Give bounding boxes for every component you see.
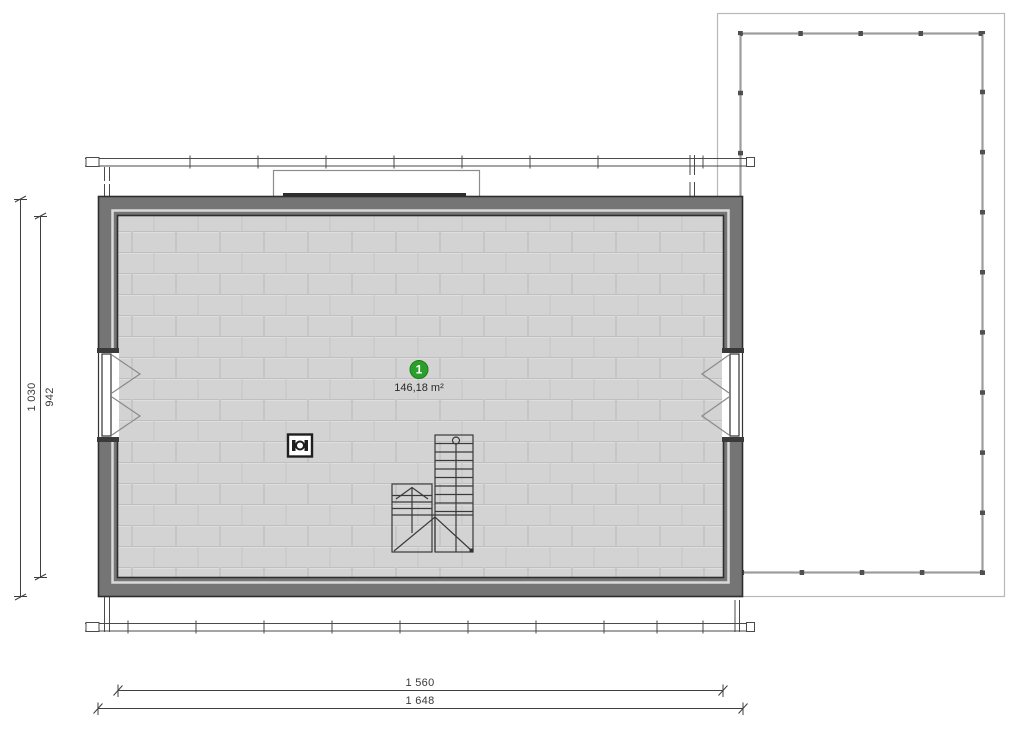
gutter-tick-icon: [105, 167, 110, 196]
gutter-tick-icon: [105, 597, 110, 632]
dimension-bottom-inner: 1 560: [114, 677, 728, 697]
floor-plan-canvas: 1 146,18 m² 1 030 942 1 560 1 648: [0, 0, 1024, 733]
stair-corner-dot: [470, 549, 474, 553]
dimension-left-outer: 1 030: [14, 196, 38, 600]
chimney-icon: [288, 435, 312, 457]
dimension-label: 1 030: [26, 382, 38, 411]
terrace-railing-posts: [741, 34, 983, 573]
eaves-end-box: [86, 158, 99, 167]
bottom-eaves-line: [85, 597, 755, 634]
eaves-end-box: [86, 623, 99, 632]
building: [99, 197, 743, 597]
room-area: 146,18 m²: [394, 382, 444, 394]
gutter-tick-icon: [735, 600, 740, 632]
terrace-outline: [718, 14, 1005, 597]
dormer-outline: [274, 171, 480, 198]
room-number: 1: [416, 363, 423, 377]
eaves-end-box: [747, 623, 755, 632]
room-floor: [118, 216, 724, 578]
gutter-tick-icon: [690, 155, 695, 196]
dimension-bottom-outer: 1 648: [94, 695, 748, 715]
dimension-label: 942: [44, 387, 56, 406]
dimension-label: 1 560: [405, 677, 434, 689]
terrace-railing: [741, 34, 983, 573]
floor-plan-drawing: 1 146,18 m² 1 030 942 1 560 1 648: [0, 0, 1024, 733]
dimension-label: 1 648: [405, 695, 434, 707]
eaves-end-box: [747, 158, 755, 167]
